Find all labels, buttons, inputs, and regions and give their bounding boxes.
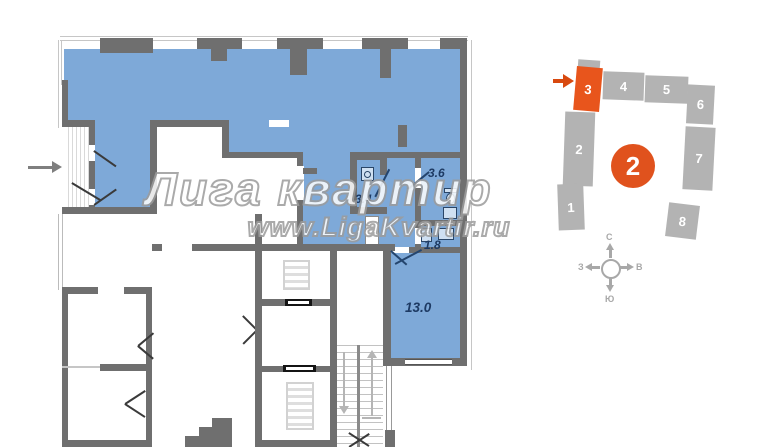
wall [62,290,68,447]
window [62,366,100,368]
stepped-wall [212,418,232,428]
wall-column [380,49,391,78]
compass-east: В [636,262,643,272]
door-opening [89,145,95,161]
apartment-area [64,49,464,121]
door-swing-icon [125,390,146,404]
section-4: 4 [603,71,645,100]
floor-plan-page: 3.4 3.6 1.8 13.0 Лига квартир www.LigaKv… [0,0,765,447]
elevator-door [283,365,316,372]
elevator-icon [283,260,310,290]
wall [383,247,391,365]
balcony-window [58,214,63,290]
wall [197,38,242,49]
door-opening [162,244,192,251]
section-5: 5 [645,75,689,103]
watermark-title: Лига квартир [78,162,560,216]
window-wall [386,366,392,430]
wall-column [211,49,227,61]
door-opening [98,287,124,294]
wall [222,152,297,158]
section-3: 3 [573,66,603,112]
wall-column [290,49,307,75]
window [405,359,452,365]
compass-north: С [606,232,613,242]
wall [62,120,95,127]
wall [385,430,395,447]
door-swing-icon [125,403,146,417]
room-label-13-0: 13.0 [405,300,431,315]
wall [150,120,228,127]
wall [100,364,152,371]
compass-south: Ю [605,294,614,304]
stepped-wall [199,427,232,437]
section-8: 8 [665,202,700,240]
section-7: 7 [682,126,715,190]
wall [277,38,323,49]
facade-outline [61,40,62,85]
wall [362,38,408,49]
wall-column [398,125,407,147]
stepped-wall [185,436,232,447]
wall [62,440,152,447]
section-1: 1 [557,184,585,231]
wall [100,38,153,53]
section-6: 6 [686,84,715,124]
watermark-url: www.LigaKvartir.ru [198,212,560,243]
elevator-door [285,299,312,306]
apartment-area [228,121,464,155]
facade-outline [60,36,468,37]
section-2: 2 [563,111,596,186]
elevator-icon [286,382,314,430]
building-number-badge: 2 [611,144,655,188]
compass-west: З [578,262,584,272]
door-opening [269,120,289,127]
facade-outline [58,40,59,128]
